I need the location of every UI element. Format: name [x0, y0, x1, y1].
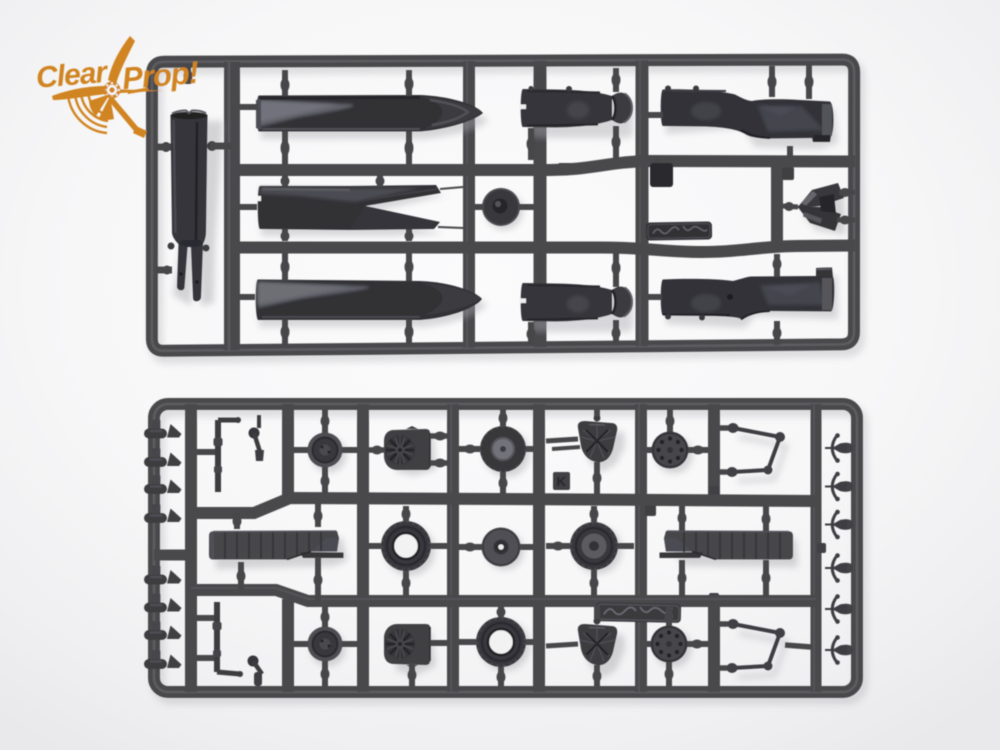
svg-text:K: K — [557, 474, 567, 489]
